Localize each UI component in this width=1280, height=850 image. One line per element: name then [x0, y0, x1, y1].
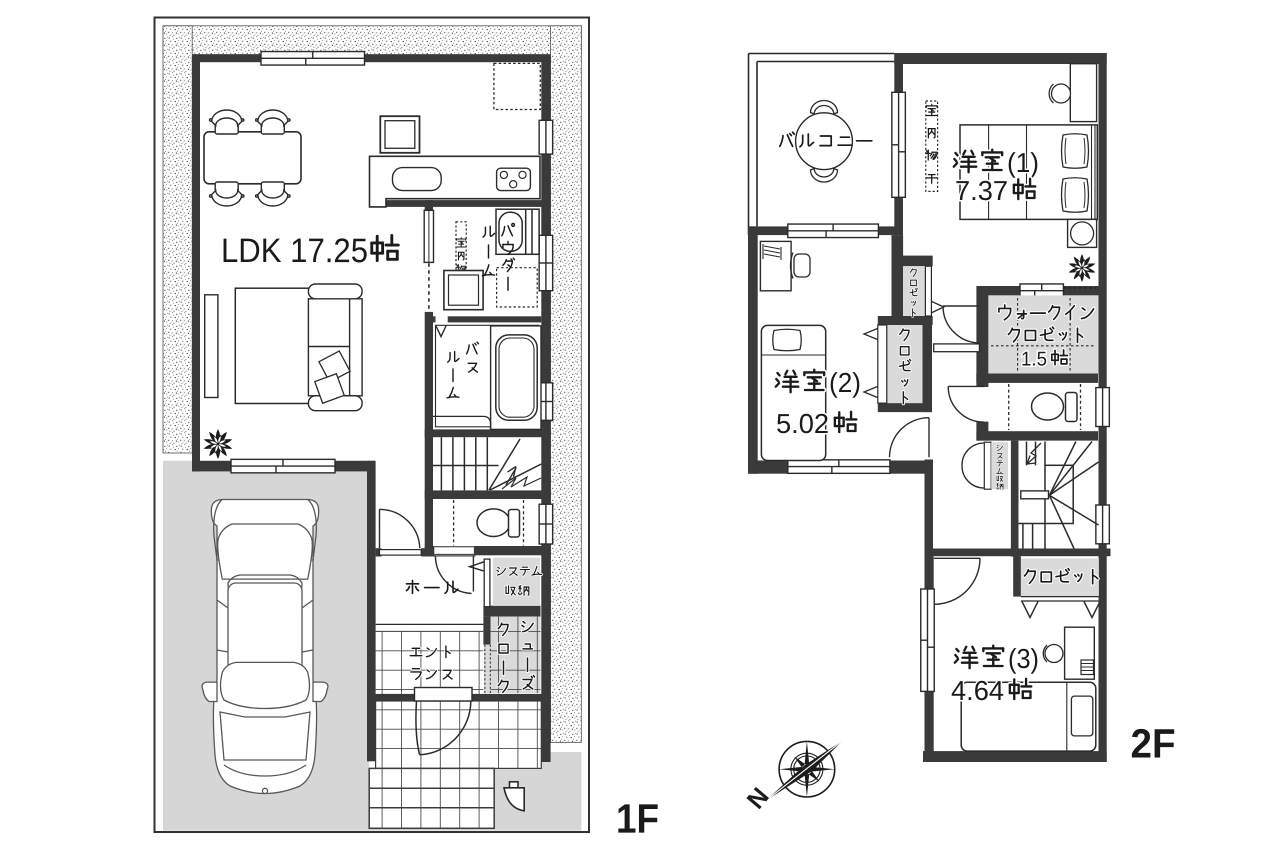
svg-text:LDK 17.25: LDK 17.25 — [221, 232, 368, 270]
svg-text:(2): (2) — [829, 367, 861, 398]
svg-text:(1): (1) — [1007, 147, 1039, 178]
svg-text:7.37: 7.37 — [955, 175, 1008, 206]
svg-text:4.64: 4.64 — [951, 675, 1004, 706]
svg-text:1.5: 1.5 — [1021, 349, 1047, 371]
svg-text:2F: 2F — [1130, 721, 1175, 767]
svg-text:5.02: 5.02 — [776, 408, 829, 439]
svg-text:1F: 1F — [616, 796, 659, 842]
svg-text:(3): (3) — [1008, 643, 1039, 674]
